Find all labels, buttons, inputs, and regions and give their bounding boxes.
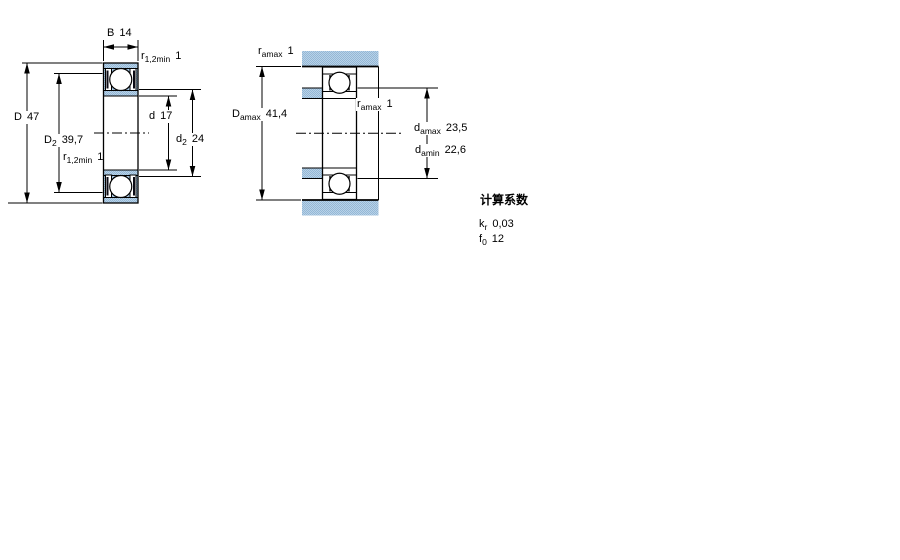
dim-B-symbol: B <box>107 27 114 39</box>
dim-r12-top-value: 1 <box>175 50 181 62</box>
bearing-mounted-diagram <box>296 51 404 216</box>
dim-ra-top-subscript: amax <box>262 49 283 59</box>
ball-top <box>329 72 350 93</box>
dim-d2-subscript: 2 <box>182 137 187 147</box>
calc-factor-f0: f012 <box>478 233 505 246</box>
housing-top-section <box>302 51 379 67</box>
calc-factor-kr-subscript: r <box>485 222 488 232</box>
shaft-shoulder-bottom <box>302 168 323 179</box>
dim-Damax-lines <box>256 67 301 201</box>
dim-Damax-symbol: D <box>232 108 240 120</box>
dim-D2-value: 39,7 <box>62 134 83 146</box>
dim-D-label: D47 <box>13 111 40 124</box>
calc-factor-f0-subscript: 0 <box>482 237 487 247</box>
dim-Damax-subscript: amax <box>240 112 261 122</box>
bearing-cross-section-diagram <box>94 63 149 203</box>
dim-r12-bottom-label: r1,2min1 <box>62 151 104 164</box>
dim-D2-symbol: D <box>44 134 52 146</box>
dim-d2-value: 24 <box>192 133 204 145</box>
ball-top <box>110 69 132 91</box>
dim-D-value: 47 <box>27 111 39 123</box>
dim-D-lines <box>8 63 103 203</box>
calculation-factors-title: 计算系数 <box>479 194 529 207</box>
dim-d-symbol: d <box>149 110 155 122</box>
dim-d-value: 17 <box>160 110 172 122</box>
dim-ra-mid-label: ramax1 <box>356 98 394 111</box>
dim-damax-subscript: amax <box>420 126 441 136</box>
dim-ra-mid-value: 1 <box>386 98 392 110</box>
dim-Damax-label: Damax41,4 <box>231 108 288 121</box>
dim-D2-label: D239,7 <box>43 134 84 147</box>
dim-D-symbol: D <box>14 111 22 123</box>
dim-Damax-value: 41,4 <box>266 108 287 120</box>
dim-ra-top-value: 1 <box>287 45 293 57</box>
dim-B-value: 14 <box>119 27 131 39</box>
dim-B-lines <box>104 40 139 61</box>
bearing-drawing-page: B14 r1,2min1 D47 D239,7 r1,2min1 d17 d22… <box>0 0 900 560</box>
calc-factor-kr: kr0,03 <box>478 218 515 231</box>
dim-ra-top-label: ramax1 <box>257 45 295 58</box>
dim-r12-top-label: r1,2min1 <box>140 50 182 63</box>
shaft-shoulder-top <box>302 88 323 99</box>
dim-r12-top-subscript: 1,2min <box>145 54 171 64</box>
dim-r12-bottom-subscript: 1,2min <box>67 155 93 165</box>
calc-factor-f0-value: 12 <box>492 233 504 245</box>
dim-d-label: d17 <box>148 110 173 123</box>
ball-bottom <box>329 173 350 194</box>
housing-bottom-section <box>302 200 379 216</box>
bearing-technical-drawing <box>0 0 900 560</box>
dim-damin-value: 22,6 <box>445 144 466 156</box>
dim-D2-subscript: 2 <box>52 138 57 148</box>
calc-factor-kr-value: 0,03 <box>492 218 513 230</box>
dim-d2-label: d224 <box>175 133 205 146</box>
dim-ra-mid-subscript: amax <box>361 102 382 112</box>
ball-bottom <box>110 176 132 198</box>
dim-r12-bottom-value: 1 <box>97 151 103 163</box>
dim-damax-label: damax23,5 <box>413 122 468 135</box>
dim-damin-subscript: amin <box>421 148 439 158</box>
dim-B-label: B14 <box>106 27 133 40</box>
dim-damin-label: damin22,6 <box>414 144 467 157</box>
dim-damax-value: 23,5 <box>446 122 467 134</box>
